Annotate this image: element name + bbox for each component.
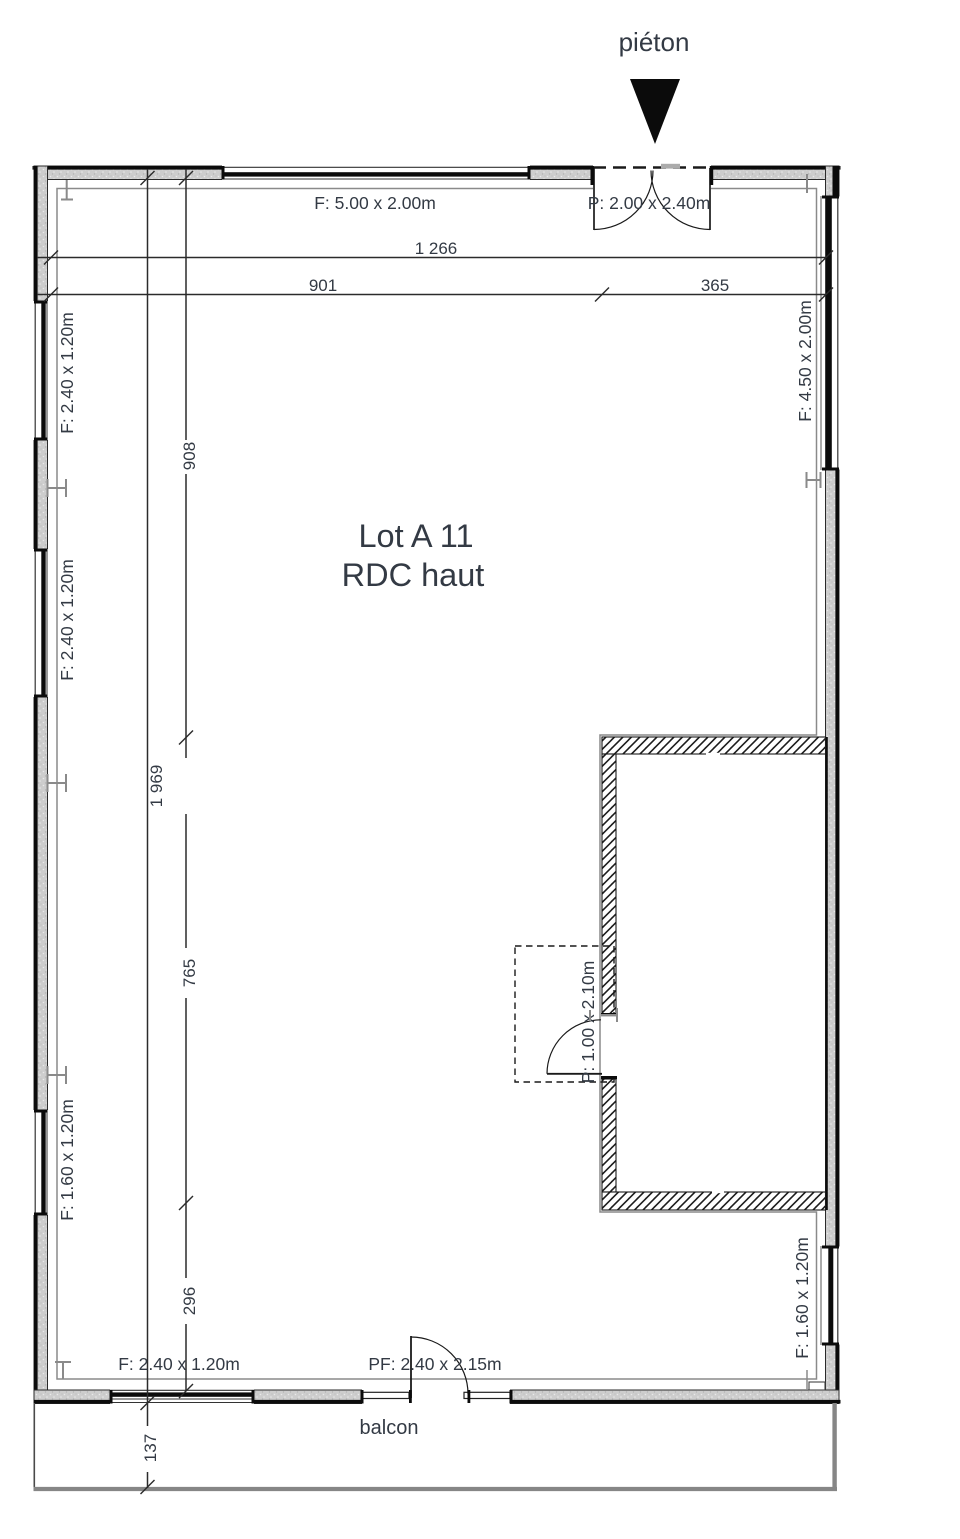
svg-text:Lot A 11: Lot A 11 (358, 518, 473, 554)
svg-text:F: 2.40 x 1.20m: F: 2.40 x 1.20m (57, 312, 77, 434)
svg-text:296: 296 (180, 1287, 199, 1315)
svg-text:F: 2.40 x 1.20m: F: 2.40 x 1.20m (57, 559, 77, 681)
svg-text:P: 1.00 x 2.10m: P: 1.00 x 2.10m (578, 961, 598, 1084)
svg-text:F: 1.60 x 1.20m: F: 1.60 x 1.20m (57, 1099, 77, 1221)
svg-text:1 266: 1 266 (415, 239, 458, 258)
svg-text:901: 901 (309, 276, 337, 295)
svg-text:765: 765 (180, 959, 199, 987)
svg-text:1 969: 1 969 (147, 765, 166, 808)
svg-text:365: 365 (701, 276, 729, 295)
svg-text:F: 5.00 x 2.00m: F: 5.00 x 2.00m (314, 193, 436, 213)
svg-text:RDC haut: RDC haut (342, 557, 485, 593)
svg-text:137: 137 (141, 1434, 160, 1462)
svg-text:PF: 2.40 x 2.15m: PF: 2.40 x 2.15m (368, 1354, 501, 1374)
svg-text:F: 4.50 x 2.00m: F: 4.50 x 2.00m (795, 300, 815, 422)
svg-text:F: 2.40 x 1.20m: F: 2.40 x 1.20m (118, 1354, 240, 1374)
svg-text:F: 1.60 x 1.20m: F: 1.60 x 1.20m (792, 1237, 812, 1359)
svg-text:P: 2.00 x 2.40m: P: 2.00 x 2.40m (588, 193, 711, 213)
svg-text:908: 908 (180, 442, 199, 470)
svg-text:balcon: balcon (360, 1417, 419, 1439)
svg-text:piéton: piéton (619, 27, 690, 57)
